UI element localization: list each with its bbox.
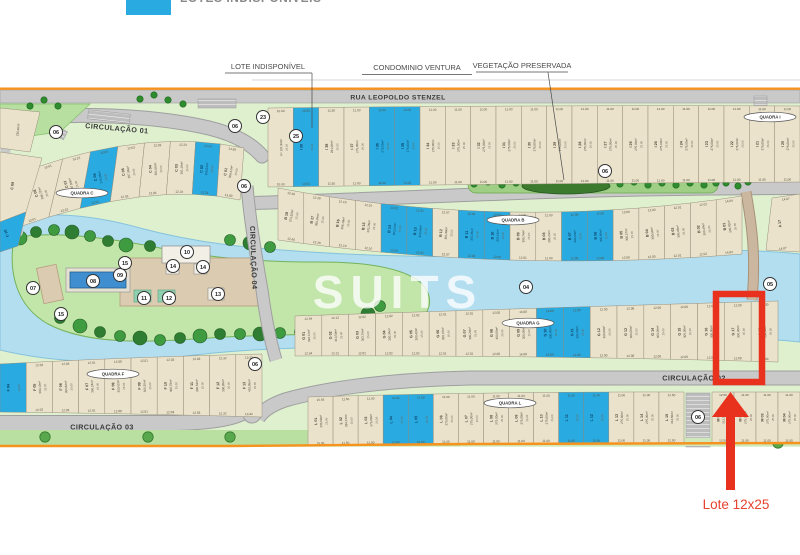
lot-area: 300,78m² [169, 379, 173, 392]
lot-area: 300,00m² [682, 325, 686, 338]
lot-G 04: G 04300,34m²25.0012.0212.02 [376, 312, 403, 355]
lot-area: 300,76m² [521, 230, 525, 243]
lot-area: 335,69m² [319, 415, 323, 428]
lot-G 02: G 02310,50m²25.0012.1212.12 [322, 314, 349, 356]
lot-width-top: 11.00 [567, 393, 575, 397]
lot-L 14: L 14275,00m²25.0011.0011.00 [634, 392, 659, 443]
lot-depth: 25.00 [473, 329, 477, 337]
street-label-circ03: CIRCULAÇÃO 03 [70, 423, 134, 432]
lot-area: 275,00m² [645, 411, 649, 424]
lot-width-top: 12.01 [88, 361, 96, 365]
lot-depth: 25.00 [550, 414, 554, 421]
lot-width-bottom: 11.00 [567, 439, 575, 443]
lot-area: 300,52m² [195, 379, 199, 392]
lot-F 11: F 11300,52m²25.0012.0312.03 [183, 355, 209, 415]
lot-I 32: I 32275,00m²25.0011.0011.00 [471, 106, 496, 184]
lot-B 11: B 11301,06m²25.0012.0212.02 [458, 210, 484, 259]
lot-width-top: 11.00 [733, 107, 741, 111]
marker-06: 06 [50, 126, 63, 139]
lot-L 04: L 0425.0011.0011.00 [383, 394, 408, 444]
lot-depth: 25.00 [581, 328, 585, 336]
tree-icon [115, 331, 126, 342]
lot-width-top: 11.00 [708, 107, 716, 111]
lot-I 25: I 25275,00m²25.0011.0011.00 [648, 106, 673, 183]
lot-I 31: I 31275,00m²25.0011.0011.00 [496, 106, 521, 184]
lot-width-top: 12.02 [416, 208, 424, 213]
lot-width-bottom: 11.00 [784, 177, 792, 181]
lot-width-bottom: 12.00 [734, 356, 742, 360]
tree-icon [31, 227, 42, 238]
marker-number: 06 [241, 184, 247, 190]
lot-area: 275,00m² [444, 413, 448, 426]
lot-area: 275,00m² [431, 139, 435, 152]
lot-id: I 33 [451, 142, 455, 148]
lot-id: G 17 [731, 328, 735, 336]
lot-id: B 06 [594, 232, 598, 240]
quadra-oval-label: QUADRA L [499, 401, 522, 406]
lot-area: 284,37m² [344, 414, 348, 427]
lot-area: 300,42m² [414, 328, 418, 341]
lot-id: L 04 [389, 415, 393, 423]
quadra-oval-label: QUADRA B [502, 218, 525, 223]
lot-depth: 25.00 [285, 143, 289, 150]
lot-G 11: G 11300,00m²25.0012.0012.00 [563, 307, 590, 358]
tree-icon [49, 225, 60, 236]
lot-width-top: 12.00 [680, 305, 688, 309]
lot-depth: 25.00 [527, 232, 531, 239]
lot-id: B 12 [439, 229, 443, 237]
lot-width-bottom: 11.00 [785, 438, 793, 442]
lot-width-bottom: 12.02 [358, 351, 366, 355]
lot-width-top: 12.01 [140, 359, 148, 363]
lot-area: 300,02m² [116, 380, 121, 393]
lot-id: I 30 [527, 142, 531, 148]
lot-F 05: F 05300,10m²25.0012.0212.02 [26, 361, 52, 412]
lot-width-top: 11.00 [530, 107, 538, 111]
lot-id: B 10 [491, 232, 495, 240]
lot-G 08: G 08300,00m²25.0012.0012.00 [483, 309, 510, 357]
lot-area: 275,00m² [507, 139, 511, 152]
lot-id: G 14 [651, 327, 655, 336]
lot-width-top: 11.00 [492, 394, 500, 398]
marker-09: 09 [114, 269, 127, 282]
lot-area: 301,16m² [495, 229, 499, 242]
lot-depth: 25.00 [17, 384, 21, 392]
lot-width-top: 11.00 [517, 394, 525, 398]
lot-id: G 05 [409, 330, 413, 338]
lot-L 12: L 1225.0011.0011.00 [584, 392, 609, 443]
lot-width-bottom: 11.00 [708, 178, 716, 182]
lot-id: I 22 [730, 141, 734, 147]
lot-area: 300,04m² [573, 230, 577, 243]
lot-area: 275,00m² [788, 411, 792, 424]
lot-id: C 03 [175, 164, 179, 172]
lot-depth: 25.00 [398, 225, 403, 233]
lot-id: L 06 [439, 415, 443, 422]
lot-depth: 25.00 [335, 143, 339, 150]
lot-depth: 25.00 [589, 141, 593, 148]
lot-depth: 25.00 [339, 331, 343, 339]
lot-width-top: 12.01 [465, 311, 473, 315]
lot-width-bottom: 11.00 [556, 179, 564, 183]
lot-area: 275,00m² [519, 412, 523, 425]
marker-23: 23 [257, 111, 270, 124]
quadra-oval-label: QUADRA C [71, 191, 94, 196]
palm-tree-icon [41, 97, 47, 103]
lot-area: 275,00m² [735, 138, 739, 151]
lot-I 39: I 3925.0010.5510.55 [293, 107, 318, 186]
lot-id: B 11 [465, 231, 469, 239]
lot-width-bottom: 11.00 [429, 180, 437, 184]
marker-13: 13 [212, 288, 225, 301]
lot-G 10: G 10300,00m²25.0014.0014.00 [537, 307, 564, 357]
tree-icon [103, 236, 114, 247]
tree-icon [225, 432, 235, 442]
tree-icon [155, 335, 166, 346]
lot-id: L 09 [515, 415, 519, 422]
lot-I 36: I 36275,00m²25.0011.0011.00 [369, 107, 394, 186]
lot-width-bottom: 12.00 [596, 256, 604, 260]
lot-id: I 26 [629, 141, 633, 147]
lot-depth: 25.00 [501, 232, 505, 240]
lot-area: 301,08m² [153, 163, 158, 176]
lot-width-top: 11.00 [592, 393, 600, 397]
lot-L 03: L 03275,00m²25.0011.0011.00 [358, 395, 383, 445]
lot-B 12: B 12301,68m²25.0012.0712.07 [433, 208, 459, 257]
lot-width-bottom: 14.00 [546, 352, 554, 356]
lot-G 17: G 17300,00m²25.0012.0012.00 [724, 302, 751, 361]
svg-text:SUITS: SUITS [313, 266, 483, 318]
lot-depth: 25.00 [420, 330, 424, 338]
lot-width-top: 12.54 [304, 317, 312, 321]
marker-number: 15 [58, 312, 64, 318]
tree-icon [225, 235, 236, 246]
lot-width-bottom: 11.00 [763, 438, 771, 442]
lot-width-top: 12.02 [412, 313, 420, 317]
lot-width-bottom: 11.00 [618, 439, 626, 443]
lot-L 10: L 10275,00m²25.0011.0011.00 [534, 392, 559, 443]
lot-depth: 25.00 [386, 142, 390, 149]
lot-width-bottom: 12.07 [442, 252, 450, 257]
lot-width-bottom: 12.03 [166, 410, 174, 414]
lot-area: 275,00m² [710, 138, 714, 151]
lot-I 28: I 28275,00m²25.0011.0011.00 [572, 106, 597, 184]
lot-width-bottom: 12.01 [88, 409, 96, 413]
lot-B 04: B 04300,59m²25.0012.0012.00 [639, 206, 665, 260]
lot-width-top: 12.03 [153, 143, 161, 147]
tree-icon [265, 242, 276, 253]
lot-id: B 03 [671, 227, 676, 235]
lot-G 07: G 07300,24m²25.0012.0112.01 [456, 310, 483, 357]
quadra-oval-label: QUADRA I [759, 115, 780, 120]
lot-F 12: F 12300,85m²25.0012.3212.32 [210, 355, 236, 417]
lot-area: 275,00m² [634, 138, 638, 151]
marker-06: 06 [229, 120, 242, 133]
lot-area: 410,86m² [247, 379, 251, 392]
quadra-oval-label: QUADRA F [102, 372, 125, 377]
lot-depth: 25.00 [513, 141, 517, 148]
lot-B 13: B 13302,66m²25.0012.0212.02 [407, 206, 433, 256]
lot-depth: 25.00 [310, 143, 314, 150]
lot-width-bottom: 12.00 [600, 353, 608, 357]
lot-depth: 25.00 [741, 140, 745, 147]
lot-depth: 25.00 [449, 229, 453, 237]
lot-depth: 25.00 [148, 382, 152, 390]
lot-width-top: 12.02 [35, 363, 43, 367]
lot-id: L 08 [489, 415, 493, 422]
lot-id: B 05 [619, 231, 624, 239]
lot-id: F 07 [85, 383, 89, 391]
marker-14: 14 [167, 260, 180, 273]
street-label-rua: RUA LEOPOLDO STENZEL [350, 95, 445, 102]
lot-id: I 38 [325, 144, 329, 150]
lot-depth: 25.00 [210, 165, 215, 173]
lot-id: L 03 [364, 417, 368, 424]
lot-width-top: 11.00 [785, 393, 793, 397]
lot-width-bottom: 12.02 [493, 255, 501, 259]
lot-depth: 25.00 [538, 141, 542, 148]
lot-id: B 09 [516, 232, 520, 240]
lot-area: 300,37m² [441, 327, 445, 340]
lot-area: 275,00m² [583, 138, 587, 151]
lot-depth: 25.00 [425, 415, 429, 423]
lot-width-top: 11.00 [417, 395, 425, 399]
lot-B 07: B 07300,04m²25.0012.0012.00 [562, 211, 588, 261]
lot-width-top: 12.00 [596, 211, 604, 215]
lot-width-top: 12.00 [622, 210, 630, 215]
lot-area: 312,50m² [670, 411, 674, 424]
lot-area: 394,11m² [307, 330, 311, 343]
lot-id: I 20 [781, 141, 785, 147]
lot-depth: 25.00 [749, 414, 753, 421]
lot-width-bottom: 11.00 [592, 439, 600, 443]
lot-width-top: 11.00 [353, 108, 361, 112]
lot-width-bottom: 12.02 [385, 351, 393, 355]
lot-width-bottom: 11.00 [454, 180, 462, 184]
lot-G 14: G 14300,00m²25.0012.0012.00 [644, 304, 671, 359]
lot-width-top: 11.00 [378, 108, 386, 112]
lot-area: 275,00m² [380, 140, 384, 153]
lot-width-bottom: 12.01 [673, 253, 681, 258]
lot-width-bottom: 11.00 [758, 178, 766, 182]
lot-area: 275,00m² [766, 411, 770, 424]
lot-depth: 25.00 [650, 414, 654, 421]
marker-11: 11 [138, 292, 151, 305]
lot-width-bottom: 12.02 [416, 250, 424, 255]
highlight-arrow-shaft [726, 412, 735, 490]
lot-id: I 25 [654, 141, 658, 147]
lot-width-top: 14.00 [546, 309, 554, 313]
marker-number: 07 [30, 286, 36, 292]
lot-id: I 32 [477, 142, 481, 148]
lot-id: G 12 [597, 328, 601, 336]
lot-L 05: L 0525.0011.0011.00 [408, 394, 433, 445]
lot-area: 275,00m² [355, 140, 359, 153]
lot-area: 300,24m² [90, 380, 95, 393]
lot-area: 300,30m² [142, 380, 146, 393]
lot-id: G 01 [302, 332, 306, 340]
lot-area: 300,23m² [547, 230, 551, 243]
marker-04: 04 [520, 281, 533, 294]
lot-width-bottom: 11.50 [328, 182, 336, 186]
lot-depth: 25.00 [366, 331, 370, 339]
lot-id: G 13 [624, 328, 628, 336]
lot-depth: 25.00 [159, 165, 163, 173]
lot-depth: 25.00 [742, 328, 746, 336]
lot-id: F 09 [137, 382, 141, 390]
lot-id: F 04 [6, 383, 10, 392]
marker-number: 12 [166, 296, 172, 302]
lot-width-bottom: 12.00 [648, 254, 656, 259]
marker-06: 06 [599, 165, 612, 178]
lot-width-top: 12.00 [570, 213, 578, 217]
lot-F 04: F 0425.00 [0, 363, 26, 413]
lot-id: L 10 [540, 414, 544, 421]
lot-width-bottom: 12.03 [193, 411, 201, 415]
lot-id: G 03 [355, 331, 359, 339]
lot-width-bottom: 11.00 [606, 179, 614, 183]
lot-id: I 28 [578, 142, 582, 148]
lot-width-bottom: 11.00 [530, 179, 538, 183]
lot-id: I 39 [299, 144, 303, 150]
lot-B 05: B 05300,27m²25.0012.0012.00 [613, 208, 639, 260]
lot-width-bottom: 11.00 [378, 181, 386, 185]
lot-depth: 25.00 [462, 142, 466, 149]
lot-width-top: 12.03 [61, 362, 69, 366]
marker-14: 14 [197, 261, 210, 274]
lot-width-top: 11.00 [367, 396, 375, 400]
lot-id: G 10 [543, 328, 547, 336]
lot-depth: 25.00 [185, 164, 189, 171]
lot-width-top: 11.00 [556, 107, 564, 111]
lot-depth: 25.00 [793, 414, 797, 421]
lot-id: I 24 [679, 140, 683, 147]
lot-id: L 15 [665, 414, 669, 421]
lot-depth: 25.00 [393, 330, 397, 338]
lot-I 33: I 33275,00m²25.0011.0011.00 [445, 106, 470, 185]
lot-depth: 25.00 [600, 414, 604, 421]
quadra-oval-quadra-g: QUADRA G [502, 318, 554, 328]
lot-width-bottom: 11.00 [733, 178, 741, 182]
lot-id: M 04 [783, 412, 787, 421]
lot-B 08: B 08300,23m²25.0012.0012.00 [536, 212, 562, 261]
lot-F 10: F 10300,78m²25.0012.0312.03 [157, 356, 183, 415]
lot-area: 310,50m² [334, 329, 338, 342]
marker-number: 25 [293, 134, 299, 140]
lot-width-bottom: 12.00 [653, 354, 661, 358]
lot-width-top: 12.24 [204, 144, 212, 149]
lot-width-top: 11.00 [758, 107, 766, 111]
lot-G 12: G 12300,00m²25.0012.0012.00 [590, 306, 617, 358]
tree-icon [133, 331, 147, 345]
lot-width-top: 11.00 [467, 395, 475, 399]
lot-width-top: 10.55 [302, 109, 310, 113]
quadra-oval-quadra-l: QUADRA L [484, 398, 536, 408]
quadra-I: A= 181,96m²25.0010.0010.00I 3925.0010.55… [268, 106, 800, 187]
marker-number: 09 [117, 273, 123, 279]
lot-depth: 25.00 [227, 382, 231, 390]
lot-width-bottom: 12.01 [465, 352, 473, 356]
marker-07: 07 [27, 282, 40, 295]
lot-area: 300,00m² [495, 327, 499, 340]
lot-width-bottom: 13.32 [245, 412, 253, 416]
lot-I 26: I 26275,00m²25.0011.0011.00 [623, 106, 648, 183]
lot-area: 275,00m² [369, 414, 373, 427]
lot-id: G 04 [382, 329, 386, 338]
lot-width-top: 11.00 [643, 393, 651, 397]
marker-06: 06 [692, 411, 705, 424]
lot-width-top: 12.01 [439, 312, 447, 316]
palm-tree-icon [55, 103, 61, 109]
lot-depth: 25.00 [375, 416, 379, 424]
lot-id: G 02 [329, 331, 333, 339]
lot-id: I 31 [502, 142, 506, 148]
lot-width-bottom: 10.00 [277, 182, 285, 186]
lot-width-top: 11.00 [542, 394, 550, 398]
lot-depth: 25.00 [688, 328, 692, 336]
lot-depth: 25.00 [174, 382, 178, 390]
lot-area: 300,34m² [387, 328, 391, 341]
lot-width-top: 12.50 [719, 393, 727, 397]
lot-depth: 25.00 [791, 140, 795, 147]
lot-width-top: 10.00 [277, 109, 285, 113]
marker-number: 06 [232, 124, 238, 130]
lot-B 18: B 18374,52m²25.0012.4612.46 [278, 188, 304, 244]
annotation-vegetacao-preservada: VEGETAÇÃO PRESERVADA [473, 61, 572, 70]
lot-depth: 25.00 [122, 382, 126, 390]
lot-id: L 01 [314, 418, 318, 425]
lot-L 11: L 1125.0011.0011.00 [559, 392, 584, 443]
lot-depth: 25.00 [554, 329, 558, 337]
lot-id: F 06 [59, 383, 63, 391]
lot-M 02: M 02275,00m²25.0011.0011.00 [734, 392, 756, 443]
highlight-label: Lote 12x25 [703, 497, 770, 512]
lot-G 05: G 05300,42m²25.0012.0212.02 [402, 312, 429, 356]
lot-G 09: G 09300,00m²25.0014.0014.00 [510, 308, 537, 357]
lot-id: B 13 [413, 227, 418, 235]
lot-depth: 25.00 [253, 382, 257, 390]
lot-width-top: 12.03 [166, 358, 174, 362]
lot-depth: 25.00 [423, 227, 428, 235]
lot-depth: 25.00 [553, 232, 557, 239]
lot-width-bottom: 11.00 [682, 178, 690, 182]
lot-corner: A= 181,96m²25.0010.0010.00 [268, 108, 293, 187]
lot-id: F 11 [190, 382, 194, 389]
lot-width-bottom: 12.02 [35, 408, 43, 412]
lot-depth: 25.00 [607, 328, 611, 336]
tree-icon [145, 241, 156, 252]
site-plan-screenshot: LOTES INDISPONÍVEIS [0, 0, 800, 555]
lot-id: B 08 [542, 232, 546, 240]
lot-depth: 25.00 [312, 332, 316, 340]
lot-width-top: 14.00 [519, 310, 527, 314]
lot-depth: 25.00 [446, 330, 450, 338]
lot-id: I 34 [426, 142, 430, 149]
marker-number: 08 [90, 279, 96, 285]
lot-width-bottom: 12.00 [545, 256, 553, 260]
lot-width-top: 15.55 [317, 398, 325, 402]
tree-icon [175, 333, 186, 344]
lot-depth: 25.00 [43, 383, 47, 391]
lot-G 03: G 03303,76m²25.0012.0212.02 [349, 313, 376, 356]
lot-width-top: 12.00 [626, 306, 634, 310]
lot-area: 300,00m² [602, 326, 606, 339]
lot-id: G 09 [516, 329, 520, 337]
lot-id: I 21 [755, 141, 759, 147]
lot-id: I 36 [375, 143, 379, 149]
quadra-oval-quadra-b: QUADRA B [487, 215, 539, 225]
lot-id: L 13 [615, 414, 619, 421]
